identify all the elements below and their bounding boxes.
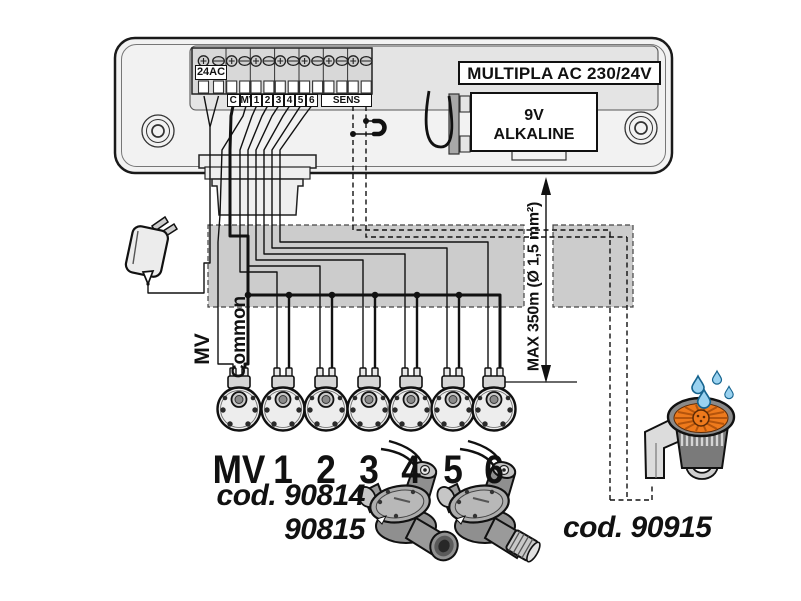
sprinkler-code-prefix: cod. xyxy=(563,511,623,544)
terminal-label-3: 3 xyxy=(273,94,284,107)
common-wire-label: Common xyxy=(230,292,250,382)
valve-label-5: 5 xyxy=(431,448,475,492)
terminal-label-4: 4 xyxy=(284,94,295,107)
sprinkler xyxy=(645,371,734,479)
valve-code-line1: cod. 90814 xyxy=(183,479,365,513)
battery-type: ALKALINE xyxy=(472,125,596,144)
valve-code-90814: 90814 xyxy=(284,479,365,512)
terminal-label-c: C xyxy=(227,94,240,107)
sprinkler-product-code: cod. 90915 xyxy=(563,511,763,545)
max-cable-run-label: MAX 350m (Ø 1,5 mm²) xyxy=(525,184,544,390)
terminal-label-mv: MV xyxy=(240,94,252,107)
battery-voltage: 9V xyxy=(472,106,596,125)
terminal-label-2: 2 xyxy=(262,94,273,107)
valve-6 xyxy=(473,368,516,431)
valve-label-4: 4 xyxy=(389,448,433,492)
zone-valves xyxy=(218,368,516,431)
valve-4 xyxy=(390,368,433,431)
valve-code-line2: 90815 xyxy=(183,513,365,547)
valve-product-codes: cod. 90814 90815 xyxy=(183,479,365,547)
battery-label: 9V ALKALINE xyxy=(470,92,598,152)
terminal-label-6: 6 xyxy=(306,94,318,107)
valve-1 xyxy=(262,368,305,431)
valve-3 xyxy=(348,368,391,431)
mv-wire-label: MV xyxy=(193,327,213,371)
valve-code-90815: 90815 xyxy=(284,513,365,546)
controller-title: MULTIPLA AC 230/24V xyxy=(458,61,661,85)
power-adapter xyxy=(124,217,177,286)
valve-code-prefix: cod. xyxy=(217,479,277,512)
terminal-label-sens: SENS xyxy=(321,94,372,107)
irrigation-wiring-diagram: MULTIPLA AC 230/24V 9V ALKALINE 24AC C M… xyxy=(0,0,801,601)
terminal-24ac-label: 24AC xyxy=(195,65,227,80)
valve-5 xyxy=(432,368,475,431)
valve-label-6: 6 xyxy=(472,448,516,492)
sprinkler-code-90915: 90915 xyxy=(631,511,712,544)
terminal-label-5: 5 xyxy=(295,94,306,107)
terminal-label-1: 1 xyxy=(251,94,262,107)
valve-2 xyxy=(305,368,348,431)
cable-gland xyxy=(199,155,316,215)
